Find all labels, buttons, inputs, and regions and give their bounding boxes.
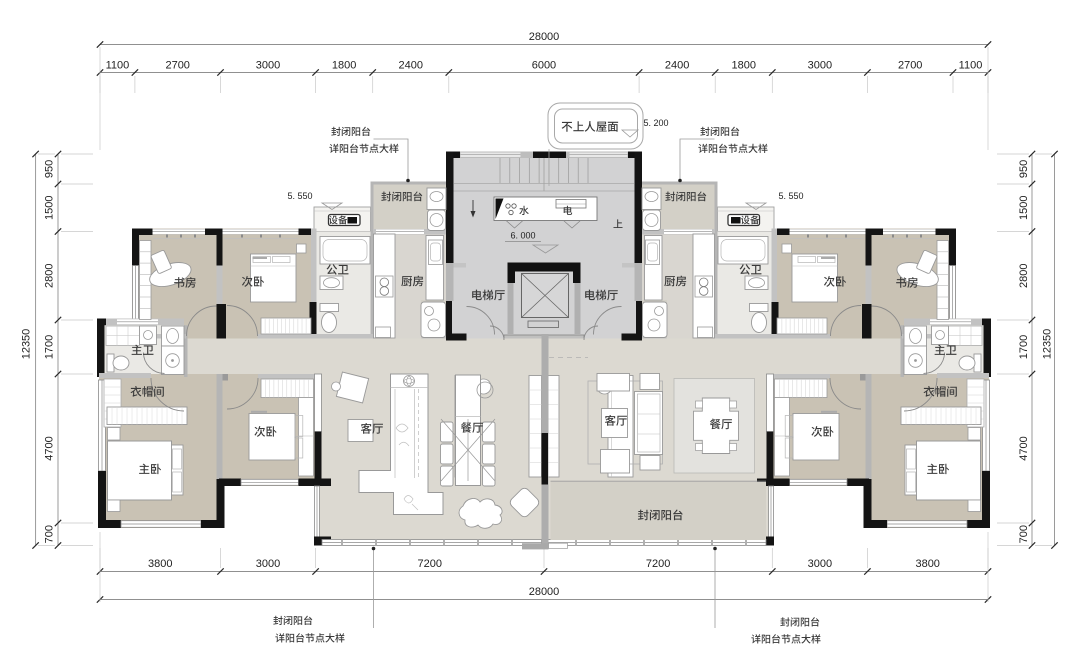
svg-text:3000: 3000 <box>256 59 280 71</box>
svg-text:5. 550: 5. 550 <box>287 191 312 201</box>
svg-text:7200: 7200 <box>646 558 670 570</box>
svg-text:2700: 2700 <box>898 59 922 71</box>
svg-text:2700: 2700 <box>165 59 189 71</box>
svg-text:6. 000: 6. 000 <box>510 231 535 241</box>
svg-text:4700: 4700 <box>1018 436 1030 460</box>
svg-text:2400: 2400 <box>399 59 423 71</box>
svg-text:1500: 1500 <box>1018 196 1030 220</box>
svg-text:950: 950 <box>1018 160 1030 178</box>
svg-text:1800: 1800 <box>332 59 356 71</box>
svg-text:950: 950 <box>44 160 56 178</box>
svg-text:3000: 3000 <box>256 558 280 570</box>
svg-text:7200: 7200 <box>418 558 442 570</box>
svg-text:12350: 12350 <box>21 329 33 360</box>
svg-text:5. 550: 5. 550 <box>778 191 803 201</box>
svg-text:1800: 1800 <box>732 59 756 71</box>
svg-text:700: 700 <box>1018 525 1030 543</box>
svg-text:3000: 3000 <box>808 59 832 71</box>
svg-text:1700: 1700 <box>44 335 56 359</box>
svg-text:3000: 3000 <box>808 558 832 570</box>
svg-text:1500: 1500 <box>44 196 56 220</box>
svg-text:1100: 1100 <box>106 59 130 71</box>
svg-text:2800: 2800 <box>44 264 56 288</box>
svg-text:12350: 12350 <box>1042 329 1054 360</box>
svg-text:6000: 6000 <box>532 59 556 71</box>
svg-text:2400: 2400 <box>665 59 689 71</box>
svg-text:3800: 3800 <box>148 558 172 570</box>
svg-text:28000: 28000 <box>529 31 560 43</box>
svg-text:2800: 2800 <box>1018 264 1030 288</box>
svg-text:700: 700 <box>44 525 56 543</box>
svg-text:4700: 4700 <box>44 436 56 460</box>
svg-text:5. 200: 5. 200 <box>643 118 668 128</box>
svg-text:28000: 28000 <box>529 586 560 598</box>
svg-text:3800: 3800 <box>915 558 939 570</box>
svg-text:1700: 1700 <box>1018 335 1030 359</box>
svg-text:1100: 1100 <box>959 59 983 71</box>
